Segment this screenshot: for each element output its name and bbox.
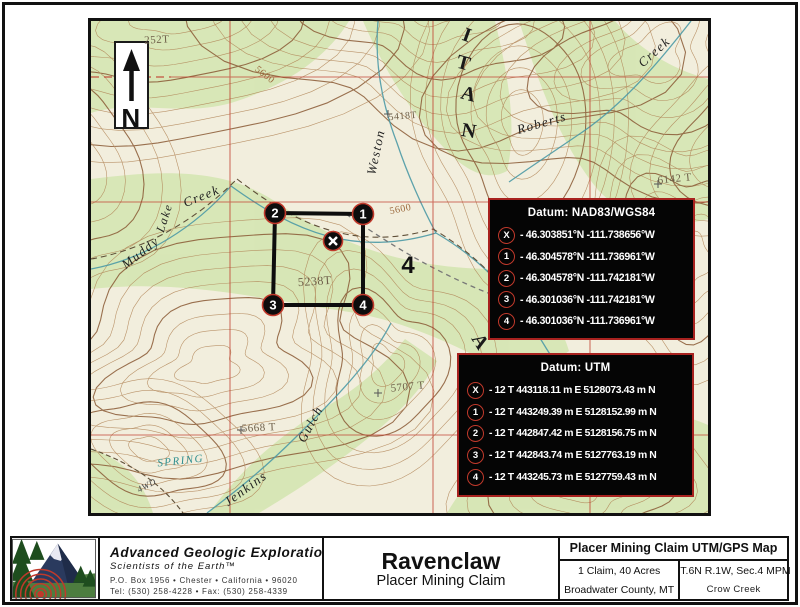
map-label: 252T bbox=[144, 33, 170, 46]
claim-title-block: Ravenclaw Placer Mining Claim bbox=[322, 538, 558, 599]
claim-marker-icon: 2 bbox=[467, 425, 484, 442]
datum-box-utm: Datum: UTM X- 12 T 443118.11 m E 5128073… bbox=[457, 353, 694, 497]
table-row: Broadwater County, MT Crow Creek bbox=[560, 580, 787, 599]
claim-marker-icon: 2 bbox=[498, 270, 515, 287]
map-label: N bbox=[121, 103, 140, 133]
svg-text:2: 2 bbox=[271, 206, 278, 221]
datum-row: X- 46.303851°N -111.738656°W bbox=[498, 227, 689, 244]
coordinate-text: - 12 T 443249.39 m E 5128152.99 m N bbox=[489, 407, 656, 418]
datum-row: 3- 12 T 442843.74 m E 5127763.19 m N bbox=[467, 447, 688, 464]
claim-subtitle: Placer Mining Claim bbox=[377, 573, 506, 589]
company-phone: Tel: (530) 258-4228 • Fax: (530) 258-433… bbox=[110, 587, 318, 596]
claim-marker-icon: 3 bbox=[467, 447, 484, 464]
map-frame: 21434252T5600Weston5418TITANARobertsCree… bbox=[88, 18, 711, 516]
coordinate-text: - 46.301036°N -111.736961°W bbox=[520, 315, 655, 327]
claim-marker-icon: X bbox=[467, 382, 484, 399]
claim-marker-icon: 1 bbox=[467, 404, 484, 421]
claim-marker-2: 2 bbox=[265, 203, 286, 224]
map-info-header: Placer Mining Claim UTM/GPS Map bbox=[560, 538, 787, 561]
coordinate-text: - 46.304578°N -111.736961°W bbox=[520, 251, 655, 263]
svg-text:3: 3 bbox=[269, 298, 276, 313]
claim-marker-3: 3 bbox=[263, 295, 284, 316]
company-tagline: Scientists of the Earth™ bbox=[110, 561, 318, 572]
coordinate-text: - 12 T 442843.74 m E 5127763.19 m N bbox=[489, 450, 656, 461]
datum-row: 1- 46.304578°N -111.736961°W bbox=[498, 248, 689, 265]
datum-rows: X- 46.303851°N -111.738656°W1- 46.304578… bbox=[490, 222, 693, 338]
claim-marker-icon: 1 bbox=[498, 248, 515, 265]
claim-size-cell: 1 Claim, 40 Acres bbox=[560, 561, 680, 580]
coordinate-text: - 46.301036°N -111.742181°W bbox=[520, 294, 655, 306]
datum-row: X- 12 T 443118.11 m E 5128073.43 m N bbox=[467, 382, 688, 399]
table-row: 1 Claim, 40 Acres T.6N R.1W, Sec.4 MPM bbox=[560, 561, 787, 580]
title-block-bar: Advanced Geologic Exploration, Inc. Scie… bbox=[10, 536, 789, 601]
svg-text:4: 4 bbox=[359, 298, 367, 313]
datum-row: 3- 46.301036°N -111.742181°W bbox=[498, 291, 689, 308]
datum-row: 4- 12 T 443245.73 m E 5127759.43 m N bbox=[467, 469, 688, 486]
coordinate-text: - 12 T 443245.73 m E 5127759.43 m N bbox=[489, 472, 656, 483]
datum-row: 2- 12 T 442847.42 m E 5128156.75 m N bbox=[467, 425, 688, 442]
map-sheet: 21434252T5600Weston5418TITANARobertsCree… bbox=[0, 0, 800, 607]
datum-box-title: Datum: UTM bbox=[459, 355, 692, 377]
claim-marker-4: 4 bbox=[353, 295, 374, 316]
company-info: Advanced Geologic Exploration, Inc. Scie… bbox=[100, 538, 322, 599]
coordinate-text: - 12 T 443118.11 m E 5128073.43 m N bbox=[489, 385, 655, 396]
claim-marker-1: 1 bbox=[353, 204, 374, 225]
claim-name: Ravenclaw bbox=[382, 549, 501, 573]
map-info-table: Placer Mining Claim UTM/GPS Map 1 Claim,… bbox=[558, 538, 787, 599]
company-address: P.O. Box 1956 • Chester • California • 9… bbox=[110, 576, 318, 585]
datum-row: 2- 46.304578°N -111.742181°W bbox=[498, 270, 689, 287]
company-name: Advanced Geologic Exploration, Inc. bbox=[110, 545, 318, 560]
claim-marker-icon: X bbox=[498, 227, 515, 244]
datum-row: 4- 46.301036°N -111.736961°W bbox=[498, 313, 689, 330]
company-logo bbox=[12, 538, 100, 599]
section-number: 4 bbox=[401, 252, 415, 279]
datum-box-title: Datum: NAD83/WGS84 bbox=[490, 200, 693, 222]
coordinate-text: - 12 T 442847.42 m E 5128156.75 m N bbox=[489, 428, 656, 439]
company-logo-icon bbox=[12, 538, 96, 599]
claim-marker-icon: 4 bbox=[467, 469, 484, 486]
township-cell: T.6N R.1W, Sec.4 MPM bbox=[680, 561, 790, 580]
coordinate-text: - 46.303851°N -111.738656°W bbox=[520, 229, 655, 241]
claim-marker-icon: 4 bbox=[498, 313, 515, 330]
claim-marker-x bbox=[324, 232, 343, 251]
coordinate-text: - 46.304578°N -111.742181°W bbox=[520, 272, 655, 284]
datum-row: 1- 12 T 443249.39 m E 5128152.99 m N bbox=[467, 404, 688, 421]
datum-box-nad83: Datum: NAD83/WGS84 X- 46.303851°N -111.7… bbox=[488, 198, 695, 340]
county-cell: Broadwater County, MT bbox=[560, 580, 680, 599]
map-label: 5238T bbox=[297, 273, 332, 289]
claim-marker-icon: 3 bbox=[498, 291, 515, 308]
datum-rows: X- 12 T 443118.11 m E 5128073.43 m N1- 1… bbox=[459, 377, 692, 495]
map-label: 5668 T bbox=[241, 421, 276, 435]
creek-cell: Crow Creek bbox=[680, 580, 787, 599]
svg-text:1: 1 bbox=[359, 207, 366, 222]
